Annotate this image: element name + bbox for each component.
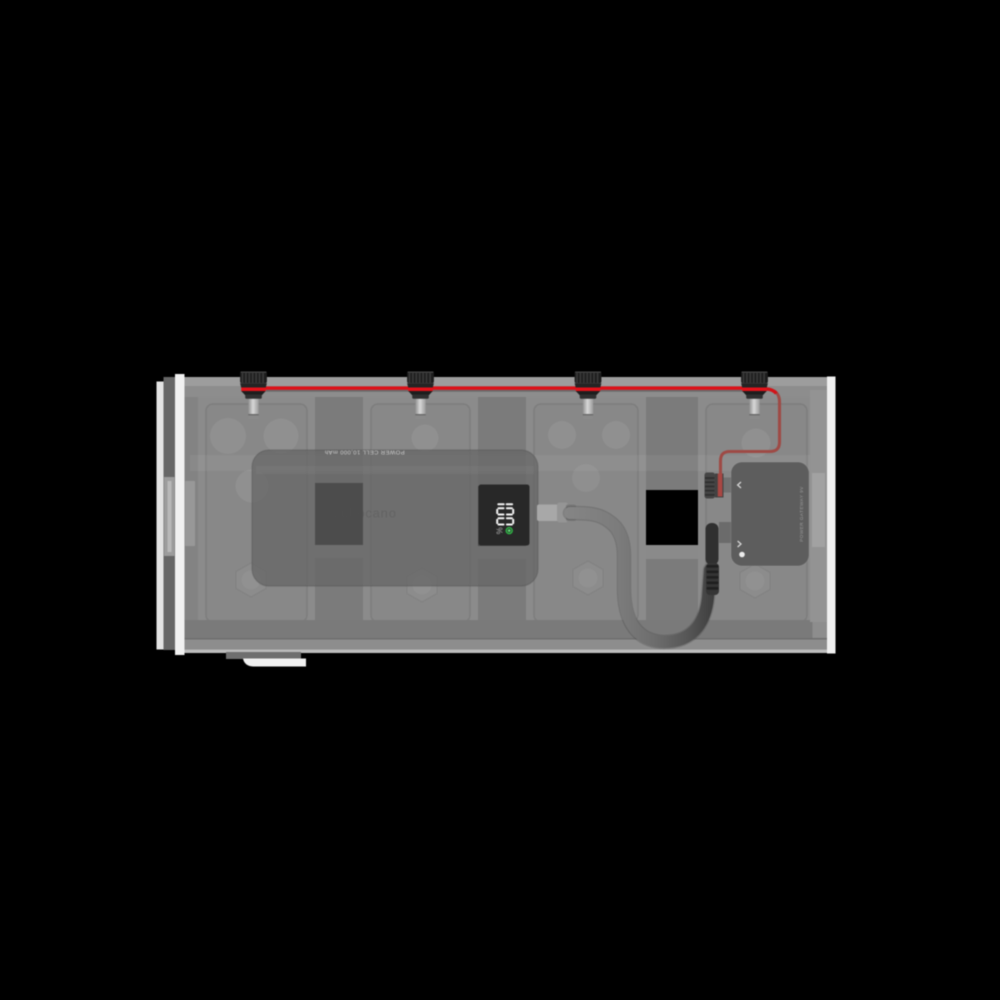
- svg-text:POWER CELL 10,000 mAh: POWER CELL 10,000 mAh: [324, 448, 404, 454]
- svg-text:POWER GATEWAY 9V: POWER GATEWAY 9V: [799, 486, 804, 542]
- svg-text:qubocano: qubocano: [333, 506, 397, 521]
- svg-text:%: %: [494, 527, 503, 534]
